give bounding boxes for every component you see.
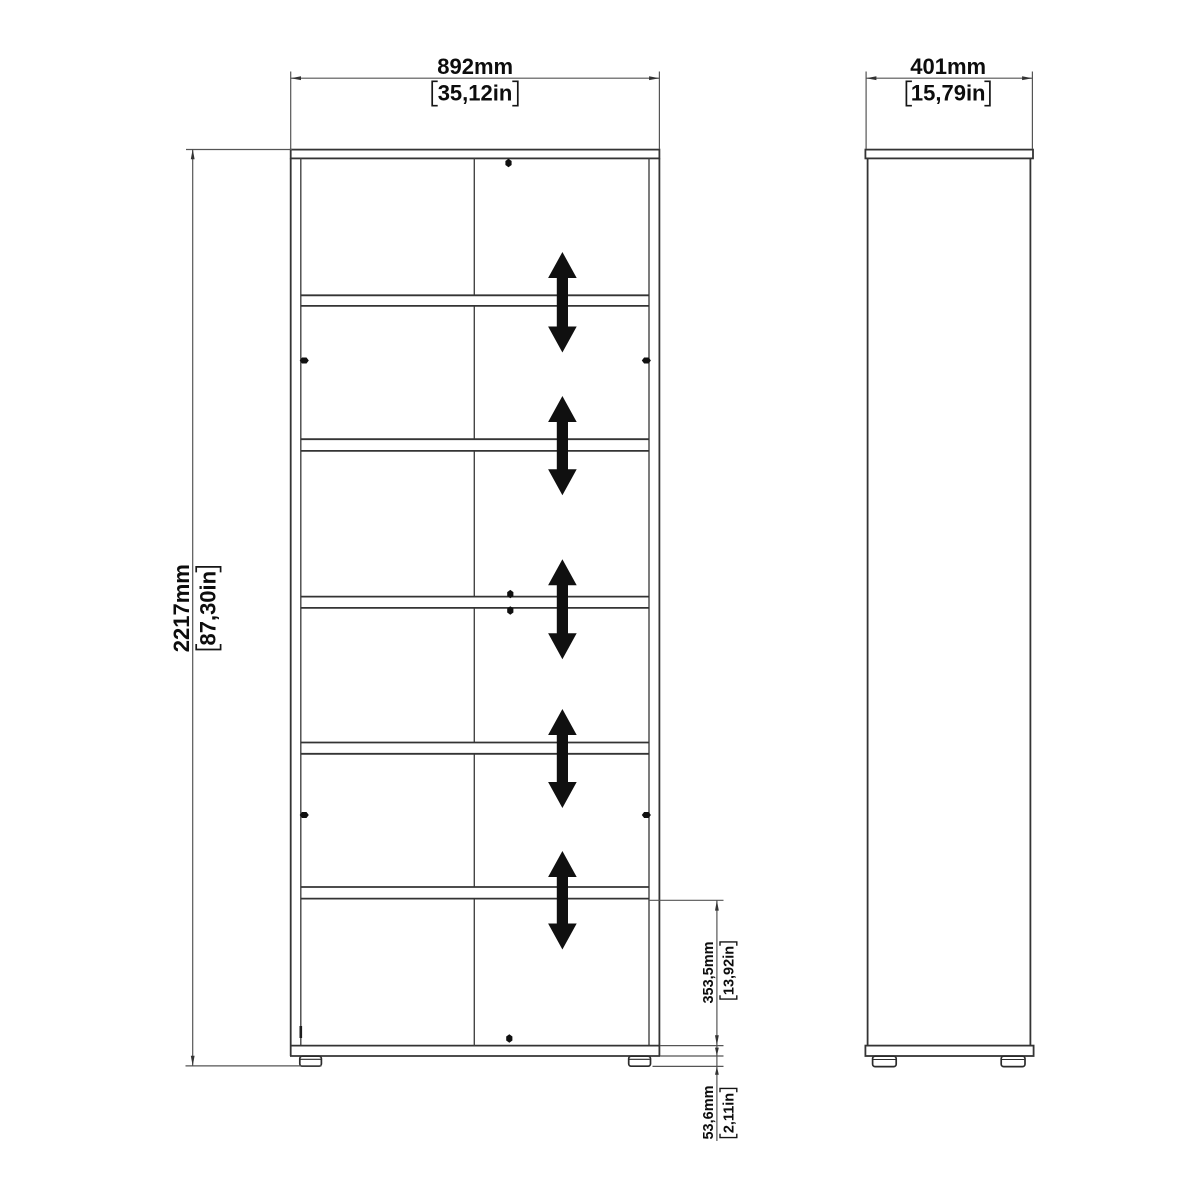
svg-text:87,30in: 87,30in [196, 571, 221, 646]
svg-text:892mm: 892mm [437, 54, 513, 79]
svg-text:53,6mm: 53,6mm [701, 1085, 717, 1139]
svg-text:15,79in: 15,79in [911, 81, 986, 106]
svg-text:401mm: 401mm [910, 54, 986, 79]
svg-text:353,5mm: 353,5mm [701, 941, 717, 1003]
svg-text:13,92in: 13,92in [721, 946, 737, 995]
svg-text:2,11in: 2,11in [721, 1093, 737, 1133]
svg-text:35,12in: 35,12in [438, 81, 513, 106]
svg-text:2217mm: 2217mm [169, 564, 194, 652]
